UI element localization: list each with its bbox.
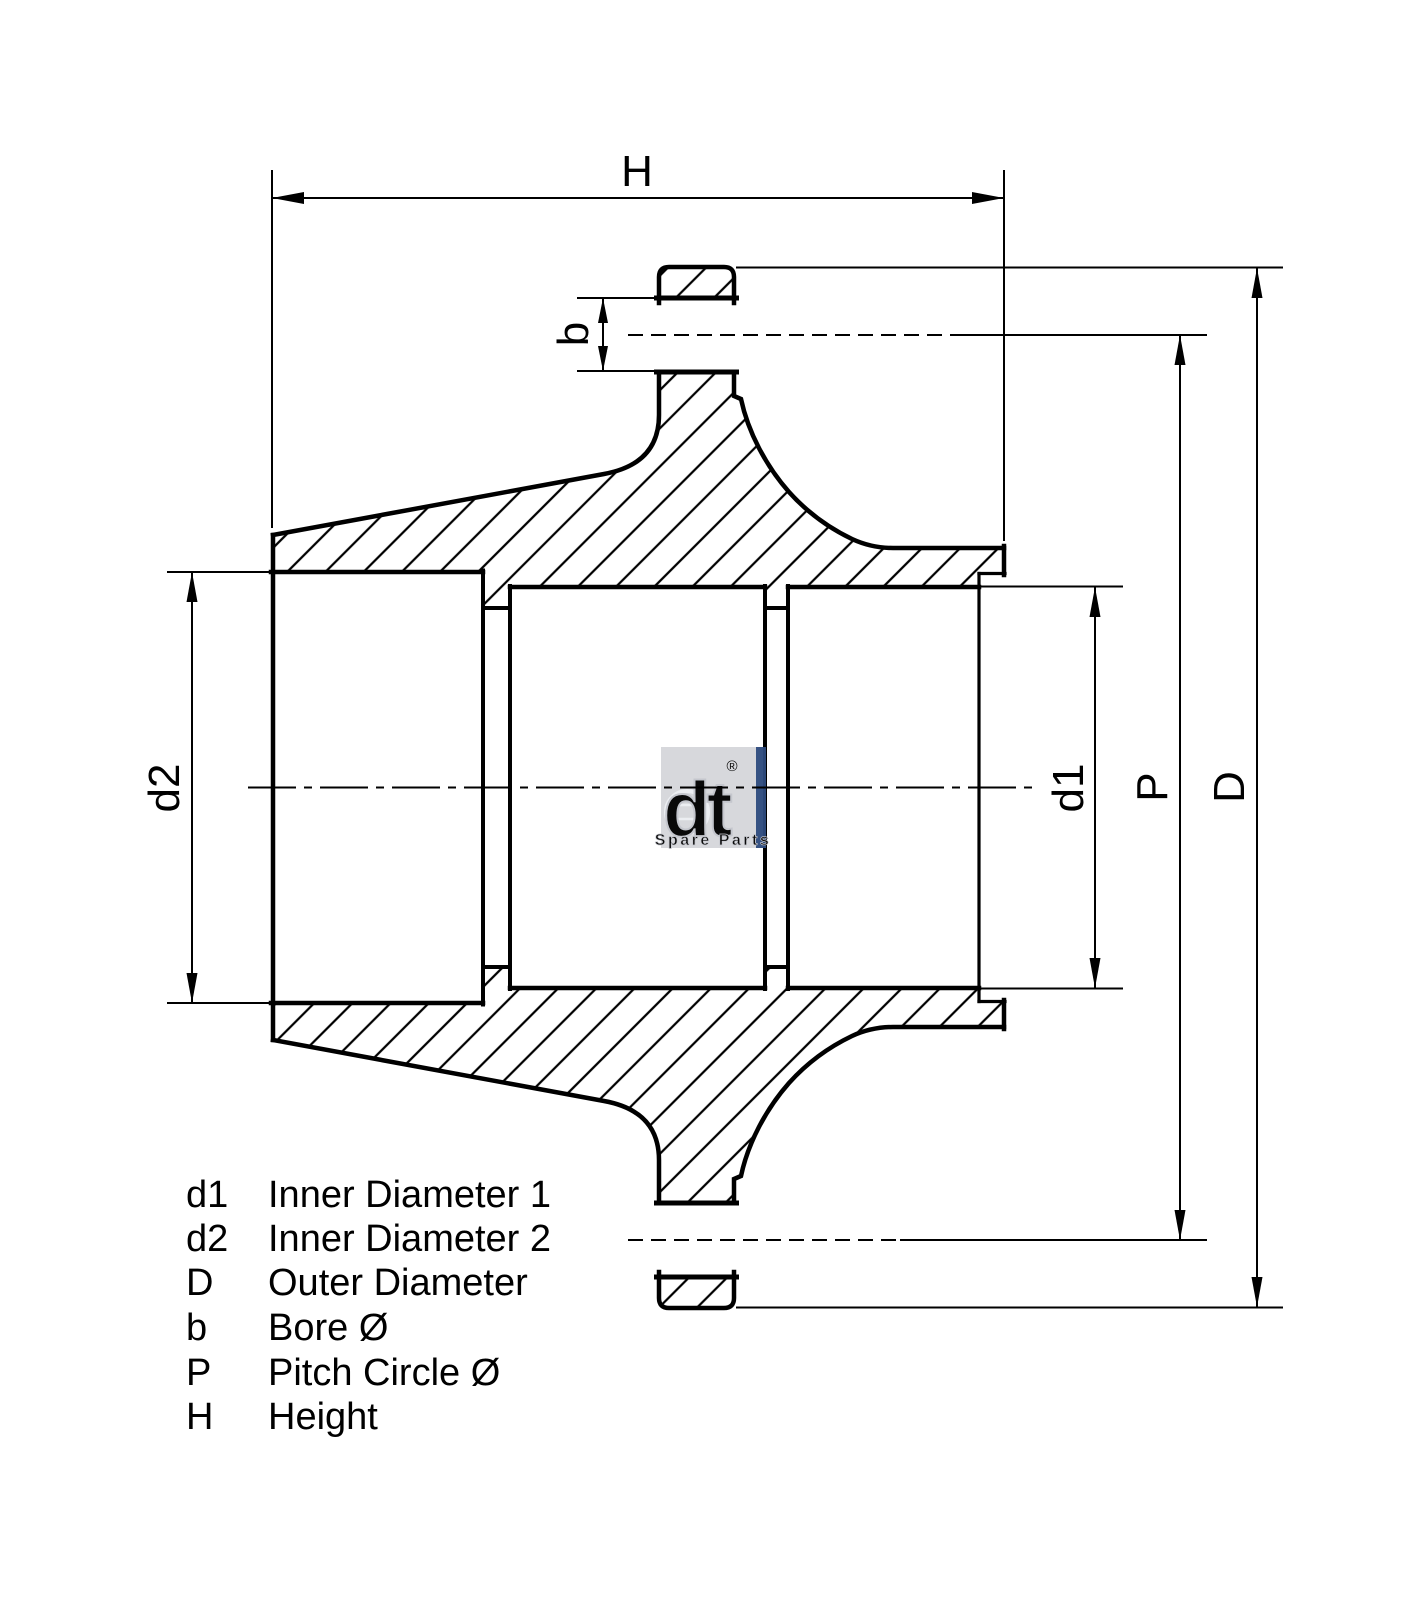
legend-row: H Height [186,1396,378,1438]
legend-label: Pitch Circle Ø [268,1352,500,1394]
legend-key: d1 [186,1174,228,1216]
legend-key: P [186,1352,211,1394]
legend-label: Height [268,1396,378,1438]
d2-arrow-top [187,572,198,602]
legend-key: D [186,1262,213,1304]
H-arrow-right [972,192,1004,204]
legend: d1 Inner Diameter 1 d2 Inner Diameter 2 … [186,1174,551,1438]
legend-label: Inner Diameter 2 [268,1218,551,1260]
P-arrow-top [1175,335,1186,365]
H-label: H [621,147,653,196]
dt-watermark: dt ® Spare Parts [655,747,771,853]
watermark-tagline: Spare Parts [655,832,771,849]
registered-mark: ® [726,758,737,775]
technical-drawing-page: dt ® Spare Parts H b d2 [0,0,1426,1600]
P-arrow-bottom [1175,1210,1186,1240]
legend-row: b Bore Ø [186,1307,388,1349]
legend-label: Bore Ø [268,1307,388,1349]
b-arrow-top [598,298,608,323]
legend-row: d2 Inner Diameter 2 [186,1218,551,1260]
legend-label: Outer Diameter [268,1262,528,1304]
D-label: D [1205,771,1254,803]
wheel-hub-section-drawing: dt ® Spare Parts H b d2 [0,0,1426,1600]
d2-label: d2 [140,764,189,813]
d1-arrow-bottom [1090,958,1101,988]
legend-key: d2 [186,1218,228,1260]
D-arrow-bottom [1252,1277,1263,1307]
legend-key: H [186,1396,213,1438]
hatch-region-top-boss-cap [659,267,734,298]
hatch-region-bottom-boss-cap [659,1277,734,1308]
b-arrow-bottom [598,346,608,371]
dimension-b: b [549,298,662,371]
P-label: P [1128,772,1177,801]
d1-arrow-top [1090,587,1101,617]
legend-key: b [186,1307,207,1349]
d2-arrow-bottom [187,973,198,1003]
legend-row: P Pitch Circle Ø [186,1352,500,1394]
H-arrow-left [272,192,304,204]
D-arrow-top [1252,268,1263,298]
b-label: b [549,322,598,346]
legend-row: D Outer Diameter [186,1262,528,1304]
legend-label: Inner Diameter 1 [268,1174,551,1216]
legend-row: d1 Inner Diameter 1 [186,1174,551,1216]
d1-label: d1 [1044,764,1093,813]
